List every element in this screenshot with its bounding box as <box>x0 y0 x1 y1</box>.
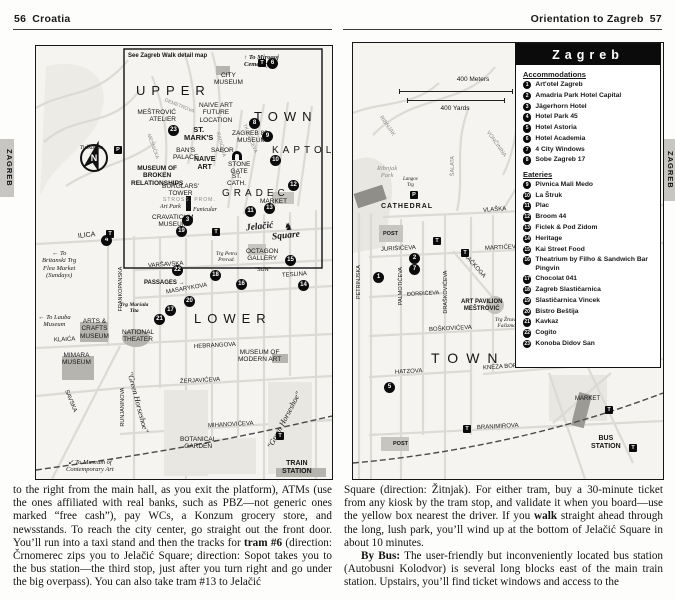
poi-national-theater: NATIONAL THEATER <box>122 329 154 344</box>
compass-rose: N <box>74 138 114 178</box>
legend-marker: 2 <box>523 92 531 100</box>
street-palmoticeva: PALMOTIĆEVA <box>398 258 404 314</box>
map-marker: 19 <box>176 226 187 237</box>
map-marker: 22 <box>172 265 183 276</box>
left-page-title: Croatia <box>32 13 70 25</box>
legend-marker: 20 <box>523 308 531 316</box>
street-stross-promenade: STROSS. PROM. <box>163 198 216 204</box>
legend-marker: 10 <box>523 192 531 200</box>
right-page-title: Orientation to Zagreb <box>531 13 644 25</box>
legend-marker: 13 <box>523 224 531 232</box>
legend-item: 5Hotel Astoria <box>523 124 656 132</box>
map-legend: Zagreb Accommodations 1Art'otel Zagreb 2… <box>515 43 661 368</box>
map-marker: 17 <box>165 305 176 316</box>
legend-item: 15Kai Street Food <box>523 246 656 254</box>
scale-meters-bar <box>399 89 513 94</box>
legend-label: Cogito <box>535 329 556 337</box>
legend-label: Hotel Park 45 <box>535 113 577 121</box>
compass-north-letter: N <box>91 153 98 163</box>
street-hatzova: HATZOVA <box>395 368 423 376</box>
legend-item: 11Plac <box>523 202 656 210</box>
note-to-contemporary-art: ↙ To Museum of Contemporary Art <box>66 459 114 474</box>
legend-item: 17Chocolat 041 <box>523 275 656 283</box>
legend-label: Zagreb Slastičarnica <box>535 286 600 294</box>
legend-item: 8Sobe Zagreb 17 <box>523 156 656 164</box>
street-draskoviceva: DRAŠKOVIĆEVA <box>443 261 449 323</box>
legend-item: 20Bistro Beštija <box>523 308 656 316</box>
poi-naive-art-future: NAIVE ART FUTURE LOCATION <box>199 102 233 124</box>
note-tuskanac: Tuškanac <box>80 145 103 152</box>
poi-art-pavilion: ART PAVILION MEŠTROVIĆ <box>461 299 502 312</box>
poi-funicular: Funicular <box>193 207 217 214</box>
area-lower: LOWER <box>194 312 272 327</box>
tram-stop-icon: T <box>258 59 266 67</box>
map-marker: 23 <box>168 125 179 136</box>
legend-marker: 8 <box>523 156 531 164</box>
legend-item: 10La Štruk <box>523 192 656 200</box>
tram-stop-icon: T <box>106 230 114 238</box>
parking-icon: P <box>410 191 418 199</box>
legend-label: Sobe Zagreb 17 <box>535 156 585 164</box>
left-header-rule <box>13 29 332 30</box>
legend-item: 23Konoba Didov San <box>523 340 656 348</box>
legend-item: 13Ficlek & Pod Zidom <box>523 224 656 232</box>
legend-label: Kavkaz <box>535 318 558 326</box>
map-marker: 8 <box>249 118 260 129</box>
map-marker: 6 <box>267 58 278 69</box>
right-paragraph-1: Square (direction: Žitnjak). For either … <box>344 484 663 550</box>
legend-marker: 15 <box>523 246 531 254</box>
stone-gate-icon <box>232 151 242 160</box>
legend-item: 74 City Windows <box>523 146 656 154</box>
right-paragraph-2: By Bus: The user-friendly but inconvenie… <box>344 550 663 590</box>
legend-marker: 22 <box>523 329 531 337</box>
tram-stop-icon: T <box>276 432 284 440</box>
poi-arts-crafts-museum: ARTS & CRAFTS MUSEUM <box>80 318 109 340</box>
street-klaica: KLAIĆA <box>54 336 76 344</box>
street-runjaninova: RUNJANINOVA <box>120 375 126 439</box>
inset-note: See Zagreb Walk detail map <box>128 53 207 60</box>
map-marker: 21 <box>154 314 165 325</box>
tram-stop-icon: T <box>629 444 637 452</box>
legend-label: Chocolat 041 <box>535 275 577 283</box>
map-marker: 14 <box>298 280 309 291</box>
tram-stop-icon: T <box>461 249 469 257</box>
legend-label: La Štruk <box>535 192 562 200</box>
legend-marker: 19 <box>523 297 531 305</box>
legend-label: Heritage <box>535 235 562 243</box>
legend-marker: 14 <box>523 235 531 243</box>
tram-stop-icon: T <box>605 406 613 414</box>
poi-burglars-tower: BURGLARS' TOWER <box>162 183 199 198</box>
map-marker: 1 <box>373 272 384 283</box>
poi-st-catherine: ST. CATH. <box>227 173 246 188</box>
legend-label: Theatrium by Filho & Sandwich Bar Pingvi… <box>535 256 656 273</box>
tram-stop-icon: T <box>433 237 441 245</box>
poi-post-office-south: POST <box>393 441 408 447</box>
legend-label: Plac <box>535 202 549 210</box>
legend-marker: 21 <box>523 318 531 326</box>
zagreb-east-map: 400 Meters 400 Yards Ribnjak Park Langov… <box>352 42 664 480</box>
poi-sun: "SUN" <box>255 267 271 273</box>
street-petrinjska: PETRINJSKA <box>356 258 362 306</box>
legend-marker: 3 <box>523 103 531 111</box>
map-marker: 16 <box>236 279 247 290</box>
map-marker: 10 <box>270 155 281 166</box>
poi-langov-trg: Langov Trg <box>403 177 418 188</box>
tram-stop-icon: T <box>463 425 471 433</box>
poi-botanical-garden: BOTANICAL GARDEN <box>180 436 216 451</box>
legend-label: Slastičarnica Vincek <box>535 297 600 305</box>
legend-marker: 17 <box>523 275 531 283</box>
area-town: TOWN <box>254 110 317 125</box>
legend-item: 18Zagreb Slastičarnica <box>523 286 656 294</box>
legend-title: Zagreb <box>516 44 660 65</box>
legend-label: Amadria Park Hotel Capital <box>535 92 621 100</box>
right-page-number: 57 <box>650 13 662 25</box>
poi-museum-modern-art: MUSEUM OF MODERN ART <box>238 349 281 364</box>
bold-text-run: walk <box>534 510 557 522</box>
legend-item: 9Pivnica Mali Medo <box>523 181 656 189</box>
legend-accommodations-heading: Accommodations <box>523 70 660 79</box>
legend-label: Jägerhorn Hotel <box>535 103 586 111</box>
poi-cathedral: CATHEDRAL <box>381 203 433 211</box>
legend-item: 19Slastičarnica Vincek <box>523 297 656 305</box>
map-marker: 3 <box>182 215 193 226</box>
legend-marker: 23 <box>523 340 531 348</box>
poi-ribnjak-park: Ribnjak Park <box>377 165 397 180</box>
legend-eateries-heading: Eateries <box>523 170 660 179</box>
legend-label: Hotel Astoria <box>535 124 576 132</box>
poi-train-station: TRAIN STATION <box>282 460 312 476</box>
poi-mestrovic-atelier: MEŠTROVIĆ ATELIER <box>134 109 176 124</box>
map-marker: 20 <box>184 296 195 307</box>
map-marker: 5 <box>384 382 395 393</box>
map-marker: 9 <box>262 131 273 142</box>
map-marker: 7 <box>409 264 420 275</box>
street-salata: ŠALATA <box>450 146 456 186</box>
jelacic-statue-icon: ♞ <box>284 222 293 233</box>
left-page-number: 56 <box>14 13 26 25</box>
note-britanski-flea-market: ← To Britanski Trg Flea Market (Sundays) <box>42 250 76 279</box>
right-page-header: Orientation to Zagreb57 <box>531 13 662 25</box>
bold-text-run: tram #6 <box>244 537 282 549</box>
passages-label: PASSAGES → <box>144 280 185 287</box>
legend-label: Bistro Beštija <box>535 308 578 316</box>
legend-marker: 12 <box>523 213 531 221</box>
poi-trg-petra: Trg Petra Prerad. <box>216 251 237 263</box>
legend-item: 16Theatrium by Filho & Sandwich Bar Ping… <box>523 256 656 273</box>
legend-item: 6Hotel Academia <box>523 135 656 143</box>
scale-yards-bar <box>407 98 505 103</box>
map-marker: 15 <box>285 255 296 266</box>
legend-item: 4Hotel Park 45 <box>523 113 656 121</box>
left-column-text: to the right from the main hall, as you … <box>13 484 332 590</box>
legend-marker: 6 <box>523 135 531 143</box>
poi-art-park: Art Park <box>160 204 181 211</box>
poi-mimara-museum: MIMARA MUSEUM <box>62 352 91 367</box>
area-upper: UPPER <box>136 84 211 99</box>
left-paragraph: to the right from the main hall, as you … <box>13 484 332 590</box>
poi-st-marks: ST. MARK'S <box>184 126 213 143</box>
poi-city-museum: CITY MUSEUM <box>214 72 243 87</box>
legend-item: 21Kavkaz <box>523 318 656 326</box>
legend-label: Kai Street Food <box>535 246 584 254</box>
area-kaptol: KAPTOL <box>272 145 333 156</box>
legend-label: Broom 44 <box>535 213 566 221</box>
legend-marker: 9 <box>523 181 531 189</box>
legend-marker: 5 <box>523 124 531 132</box>
map-marker: 18 <box>210 270 221 281</box>
legend-marker: 4 <box>523 113 531 121</box>
legend-item: 1Art'otel Zagreb <box>523 81 656 89</box>
legend-label: Konoba Didov San <box>535 340 594 348</box>
legend-item: 12Broom 44 <box>523 213 656 221</box>
legend-marker: 16 <box>523 256 531 264</box>
scale-yards-label: 400 Yards <box>411 105 499 112</box>
poi-octagon-gallery: OCTAGON GALLERY <box>246 248 278 263</box>
legend-marker: 11 <box>523 202 531 210</box>
map-marker: 11 <box>245 206 256 217</box>
book-spread: { "header_left": {"page": "56", "title":… <box>0 0 675 600</box>
map-marker: 13 <box>264 203 275 214</box>
zagreb-city-map: N See Zagreb Walk detail map ↑ To Mirogo… <box>35 45 333 480</box>
poi-naive-art: NAIVE ART <box>194 156 215 172</box>
bold-text-run: By Bus: <box>361 550 400 562</box>
note-to-lauba: ← To Lauba Museum <box>38 314 71 329</box>
legend-label: Pivnica Mali Medo <box>535 181 593 189</box>
legend-item: 14Heritage <box>523 235 656 243</box>
left-edge-tab: ZAGREB <box>0 139 14 197</box>
poi-bus-station: BUS STATION <box>591 435 621 451</box>
legend-label: 4 City Windows <box>535 146 584 154</box>
legend-item: 3Jägerhorn Hotel <box>523 103 656 111</box>
legend-marker: 18 <box>523 286 531 294</box>
legend-item: 2Amadria Park Hotel Capital <box>523 92 656 100</box>
poi-trg-marsala-tita: Trg Maršala Tita <box>120 302 148 314</box>
legend-marker: 1 <box>523 81 531 89</box>
left-page-header: 56Croatia <box>14 13 71 25</box>
map-marker: 2 <box>409 253 420 264</box>
parking-icon: P <box>114 146 122 154</box>
legend-label: Art'otel Zagreb <box>535 81 582 89</box>
right-column-text: Square (direction: Žitnjak). For either … <box>344 484 663 590</box>
poi-post-office-north: POST <box>383 231 398 237</box>
legend-label: Ficlek & Pod Zidom <box>535 224 597 232</box>
tram-stop-icon: T <box>212 228 220 236</box>
legend-item: 22Cogito <box>523 329 656 337</box>
right-header-rule <box>343 29 662 30</box>
legend-label: Hotel Academia <box>535 135 585 143</box>
map-marker: 12 <box>288 180 299 191</box>
poi-market-east: MARKET <box>575 396 600 403</box>
legend-marker: 7 <box>523 146 531 154</box>
